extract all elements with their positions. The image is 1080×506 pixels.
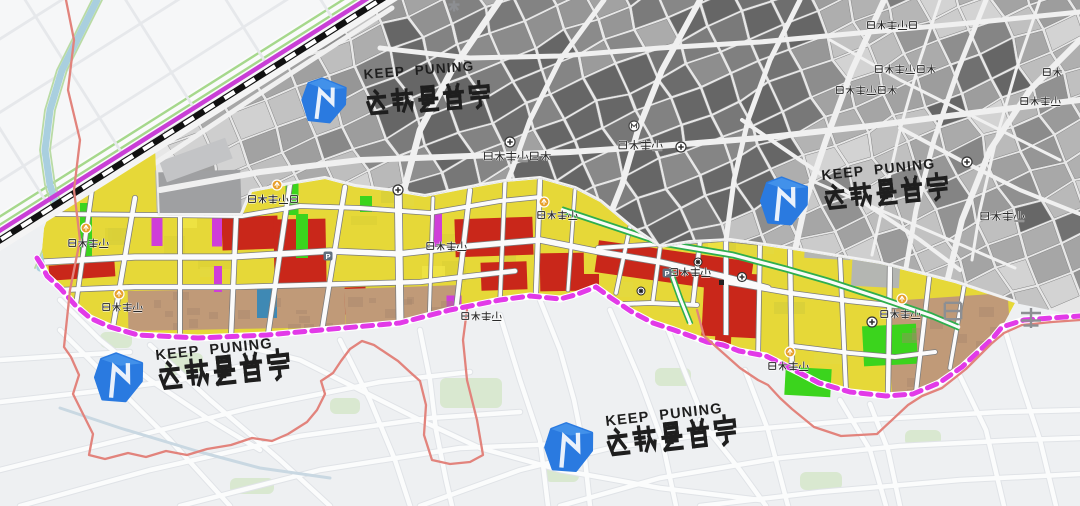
svg-text:P: P <box>325 252 330 261</box>
svg-text:P: P <box>664 269 669 278</box>
